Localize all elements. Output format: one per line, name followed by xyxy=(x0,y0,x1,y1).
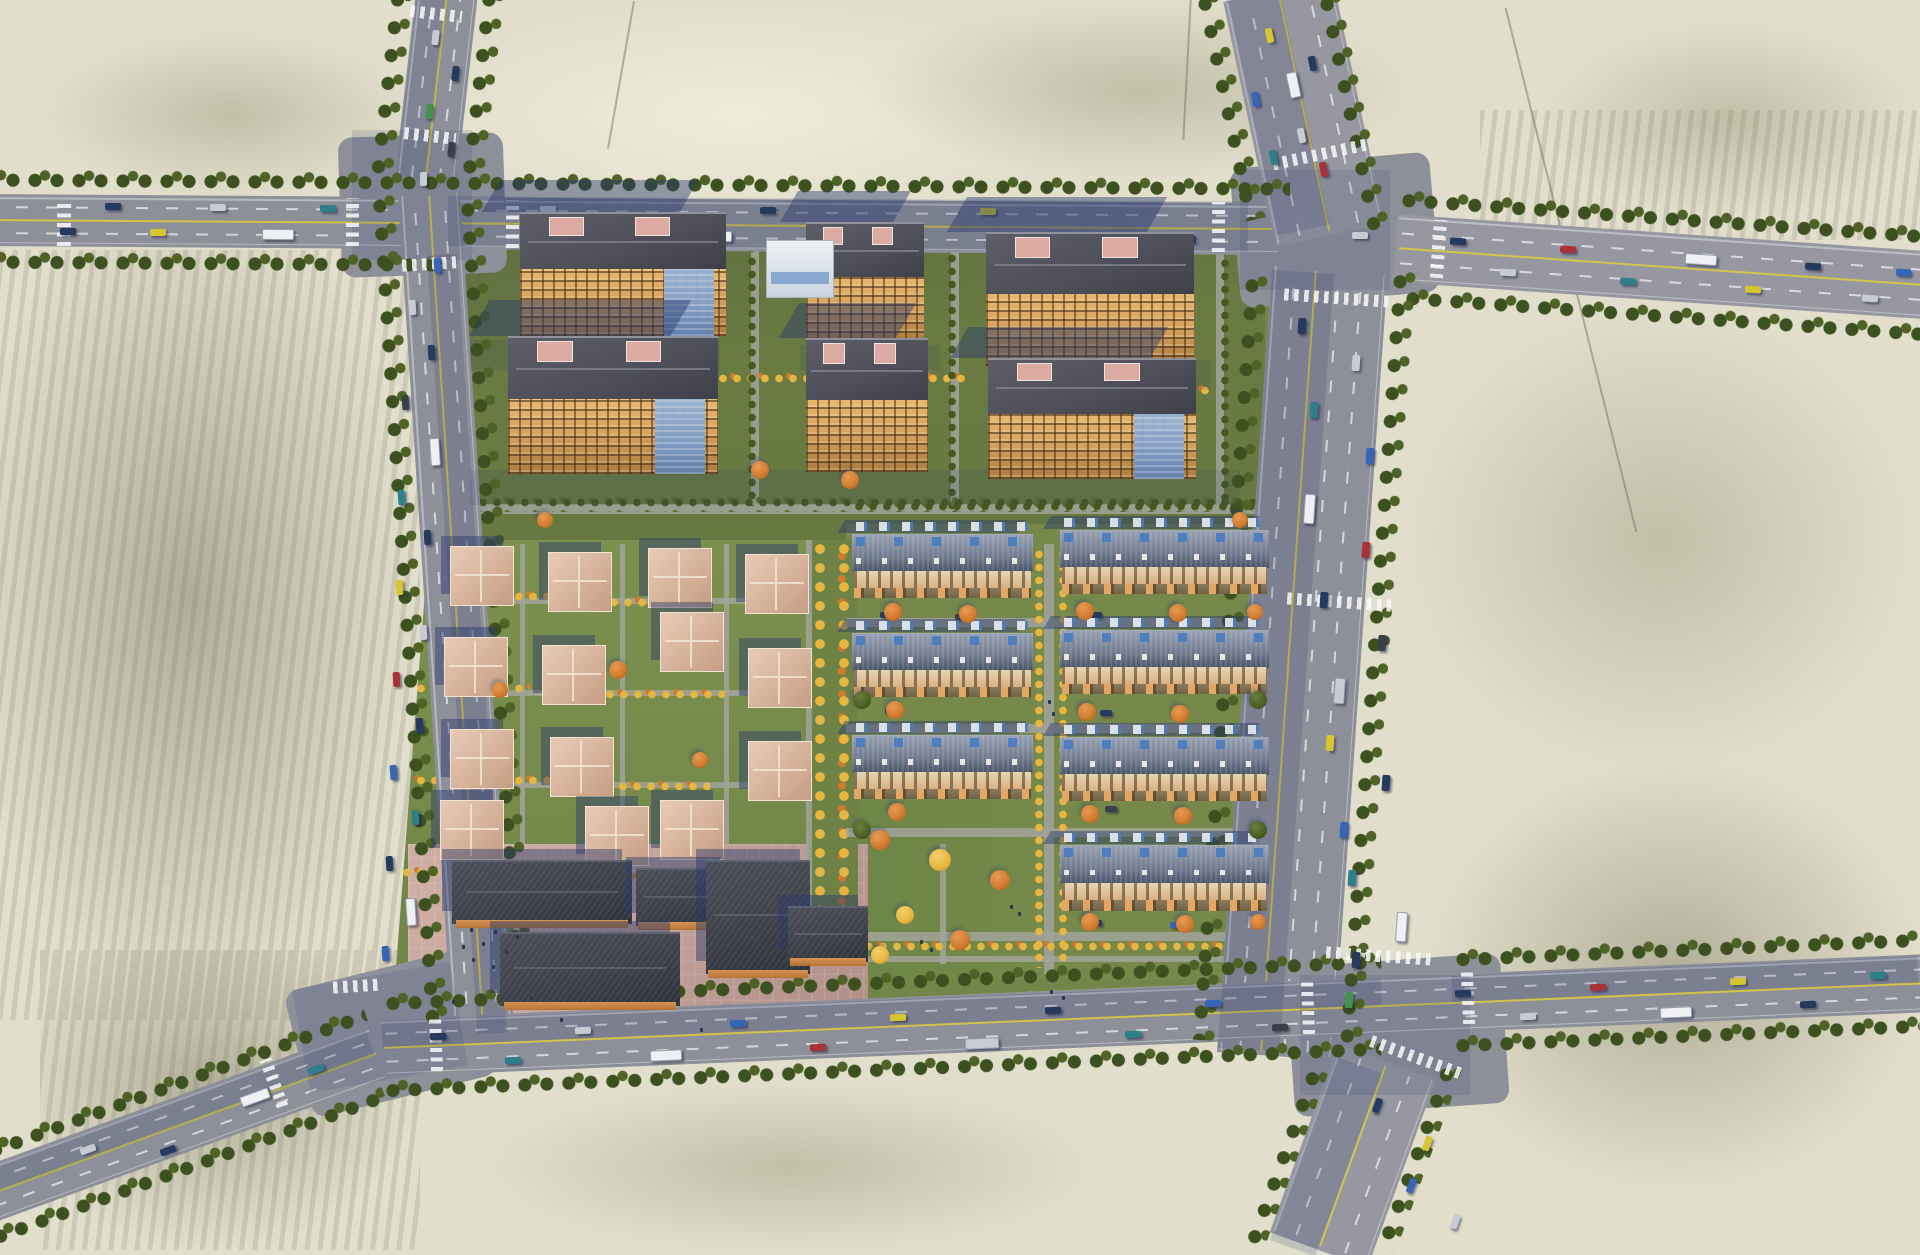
golden-tree xyxy=(896,906,914,924)
vehicle-bus xyxy=(965,1037,999,1049)
townhouse-ground-floor xyxy=(854,588,1031,598)
golden-tree xyxy=(871,946,889,964)
vehicle-car xyxy=(390,765,398,780)
vehicle-car xyxy=(1125,1031,1141,1039)
pedestrian-dot xyxy=(560,1018,563,1022)
townhouse-ground-floor xyxy=(854,687,1031,697)
roof-dormers xyxy=(856,558,1030,564)
roof-skylights xyxy=(856,537,1030,546)
vehicle-bus xyxy=(1685,253,1718,266)
aerial-site-rendering xyxy=(0,0,1920,1255)
tower-building xyxy=(988,358,1196,479)
roof-penthouse xyxy=(872,227,893,246)
villa-house xyxy=(745,554,807,612)
roof-valley xyxy=(445,828,500,830)
vehicle-car xyxy=(1745,285,1761,293)
street-tree-line xyxy=(0,248,435,281)
vehicle-car xyxy=(1620,277,1636,285)
roof-skylights xyxy=(1064,633,1265,642)
vehicle-car xyxy=(210,204,226,211)
townhouse-facade xyxy=(854,670,1031,687)
roof-penthouse xyxy=(549,217,584,236)
villa-roof xyxy=(648,548,712,608)
villa-roof xyxy=(450,546,514,606)
townhouse-roof xyxy=(852,534,1033,572)
commercial-roof xyxy=(452,860,632,924)
townhouse-ground-floor xyxy=(1062,584,1267,594)
vehicle-car xyxy=(1297,318,1306,335)
vehicle-car xyxy=(320,205,336,212)
autumn-tree xyxy=(950,930,970,950)
autumn-tree xyxy=(751,461,769,479)
vehicle-car xyxy=(1325,735,1334,752)
vehicle-car xyxy=(810,1044,826,1052)
villa-house xyxy=(550,737,612,795)
glass-curtain-wall xyxy=(655,399,705,474)
roof-dormers xyxy=(856,759,1030,765)
tower-building xyxy=(508,336,718,474)
roof-ridge xyxy=(994,264,1185,266)
townhouse-facade xyxy=(1062,667,1267,684)
vehicle-car xyxy=(416,718,424,733)
green-tree xyxy=(853,691,871,709)
commercial-building xyxy=(788,906,868,960)
roof-valley xyxy=(678,552,680,603)
roof-valley xyxy=(590,834,645,836)
roof-dormers xyxy=(1064,761,1265,767)
roof-valley xyxy=(690,616,692,667)
vehicle-car xyxy=(396,580,404,595)
villa-roof xyxy=(450,729,514,789)
lit-storefront xyxy=(708,970,808,978)
townhouse-row xyxy=(1060,630,1269,694)
townhouse-roof xyxy=(1060,530,1269,568)
vehicle-car xyxy=(1377,635,1386,652)
footpath xyxy=(1044,544,1054,974)
townhouse-facade xyxy=(854,772,1031,789)
vehicle-car xyxy=(150,229,166,236)
townhouse-ground-floor xyxy=(1062,684,1267,694)
autumn-tree xyxy=(1247,604,1263,620)
pedestrian-dot xyxy=(472,958,475,962)
villa-house xyxy=(748,741,810,799)
autumn-tree xyxy=(886,701,904,719)
vehicle-bus xyxy=(1303,494,1316,525)
vehicle-car xyxy=(402,395,410,410)
vehicle-car xyxy=(60,228,76,235)
villa-house xyxy=(548,552,610,610)
pedestrian-dot xyxy=(492,965,495,969)
pedestrian-dot xyxy=(470,928,473,932)
roof-valley xyxy=(578,556,580,607)
glass-curtain-wall xyxy=(1134,414,1184,479)
roof-valley xyxy=(449,665,504,667)
vehicle-car xyxy=(428,345,436,360)
roof-penthouse xyxy=(1017,363,1052,382)
vehicle-car xyxy=(1862,294,1878,302)
vehicle-car xyxy=(386,856,394,871)
tower-facade xyxy=(988,414,1196,479)
building-shadow xyxy=(780,191,911,222)
pedestrian-dot xyxy=(1052,712,1055,716)
crosswalk xyxy=(57,200,71,246)
roof-valley xyxy=(553,580,608,582)
vehicle-car xyxy=(1450,1213,1462,1229)
tower-roof xyxy=(520,212,726,271)
vehicle-bus xyxy=(650,1049,682,1061)
roof-skylights xyxy=(1064,740,1265,749)
roof-valley xyxy=(778,745,780,796)
villa-roof xyxy=(660,612,724,672)
vehicle-car xyxy=(575,1027,591,1035)
vehicle-car xyxy=(1560,245,1576,253)
commercial-roof xyxy=(788,906,868,962)
autumn-tree xyxy=(1078,703,1096,721)
roof-valley xyxy=(665,828,720,830)
autumn-tree xyxy=(959,605,977,623)
roof-valley xyxy=(653,576,708,578)
tower-roof xyxy=(988,358,1196,416)
roof-dormers xyxy=(1064,654,1265,660)
vehicle-bus xyxy=(1660,1006,1692,1018)
roof-skylights xyxy=(856,636,1030,645)
vehicle-car xyxy=(430,1033,446,1041)
roof-valley xyxy=(480,733,482,784)
pedestrian-dot xyxy=(930,948,933,952)
roof-penthouse xyxy=(1015,237,1050,257)
pedestrian-dot xyxy=(1050,990,1053,994)
vehicle-car xyxy=(1361,542,1370,559)
roof-ridge xyxy=(528,241,718,243)
townhouse-ground-floor xyxy=(1062,791,1267,801)
vehicle-car xyxy=(1352,232,1368,239)
townhouse-facade xyxy=(1062,774,1267,791)
pedestrian-dot xyxy=(1062,996,1065,1000)
vehicle-car xyxy=(420,625,428,640)
vehicle-bus xyxy=(429,438,441,467)
townhouse-row xyxy=(1060,530,1269,594)
autumn-tree xyxy=(1171,705,1189,723)
villa-house xyxy=(542,645,604,703)
roof-valley xyxy=(580,741,582,792)
building-shadow xyxy=(950,327,1168,358)
roof-penthouse xyxy=(626,341,662,362)
vehicle-car xyxy=(1455,990,1471,998)
clubhouse xyxy=(766,240,834,298)
roof-penthouse xyxy=(635,217,670,236)
roof-valley xyxy=(474,641,476,692)
roof-valley xyxy=(775,558,777,609)
townhouse-facade xyxy=(1062,883,1267,900)
roof-dormers xyxy=(856,657,1030,663)
villa-roof xyxy=(748,648,812,708)
townhouse-roof xyxy=(1060,630,1269,668)
pedestrian-dot xyxy=(494,930,497,934)
roof-ridge xyxy=(466,891,617,893)
roof-valley xyxy=(470,804,472,855)
building-shadow xyxy=(468,300,690,336)
vehicle-car xyxy=(1205,1000,1221,1008)
autumn-tree xyxy=(492,682,508,698)
terrain-patch xyxy=(0,250,420,1020)
autumn-tree xyxy=(841,471,859,489)
lit-storefront xyxy=(790,958,867,966)
autumn-tree xyxy=(692,752,708,768)
vehicle-car xyxy=(1520,1013,1536,1021)
vehicle-car xyxy=(1365,448,1374,465)
townhouse-facade xyxy=(854,571,1031,588)
autumn-tree xyxy=(1081,805,1099,823)
vehicle-car xyxy=(434,258,442,273)
villa-house xyxy=(450,546,512,604)
building-shadow xyxy=(482,180,698,212)
garage-row xyxy=(1064,833,1265,842)
townhouse-ground-floor xyxy=(854,789,1031,799)
townhouse-ground-floor xyxy=(1062,900,1267,911)
vehicle-car xyxy=(1339,822,1348,839)
crosswalk xyxy=(1301,982,1315,1034)
pedestrian-dot xyxy=(462,945,465,949)
roof-ridge xyxy=(516,368,709,370)
pedestrian-dot xyxy=(452,1000,455,1004)
townhouse-roof xyxy=(852,735,1033,773)
villa-roof xyxy=(542,645,606,705)
pedestrian-dot xyxy=(505,950,508,954)
villa-house xyxy=(748,648,810,706)
vehicle-car xyxy=(424,530,432,545)
garage-row xyxy=(1064,618,1265,627)
villa-roof xyxy=(745,554,809,614)
vehicle-car xyxy=(760,207,776,214)
villa-house xyxy=(450,729,512,787)
clubhouse-canopy xyxy=(771,272,829,284)
roof-dormers xyxy=(1064,870,1265,876)
green-tree xyxy=(853,821,871,839)
vehicle-car xyxy=(1870,972,1886,980)
crosswalk xyxy=(346,198,359,246)
tower-building xyxy=(806,338,928,472)
vehicle-car xyxy=(1450,237,1466,245)
roof-penthouse xyxy=(874,343,896,363)
pedestrian-dot xyxy=(482,942,485,946)
autumn-tree xyxy=(870,830,890,850)
pedestrian-dot xyxy=(1010,905,1013,909)
vehicle-bus xyxy=(405,898,417,927)
vehicle-car xyxy=(398,490,406,505)
townhouse-row xyxy=(1060,845,1269,911)
vehicle-car xyxy=(409,300,417,315)
vehicle-car xyxy=(1351,952,1360,969)
roof-penthouse xyxy=(823,343,845,363)
commercial-building xyxy=(500,932,680,1004)
autumn-tree xyxy=(1174,807,1192,825)
crosswalk xyxy=(429,1019,443,1071)
townhouse-row xyxy=(1060,737,1269,801)
villa-roof xyxy=(548,552,612,612)
garage-row xyxy=(1064,725,1265,734)
vehicle-car xyxy=(1309,402,1318,419)
roof-valley xyxy=(753,769,808,771)
building-shadow xyxy=(947,197,1167,232)
vehicle-car xyxy=(105,203,121,210)
autumn-tree xyxy=(537,512,553,528)
tower-roof xyxy=(986,232,1194,296)
vehicle-car xyxy=(412,810,420,825)
commercial-building xyxy=(452,860,632,922)
villa-house xyxy=(648,548,710,606)
vehicle-car xyxy=(1800,1001,1816,1009)
roof-skylights xyxy=(1064,848,1265,857)
pedestrian-dot xyxy=(530,996,533,1000)
townhouse-roof xyxy=(1060,737,1269,775)
villa-roof xyxy=(550,737,614,797)
roof-skylights xyxy=(856,738,1030,747)
tower-roof xyxy=(806,338,928,402)
vehicle-car xyxy=(1344,992,1353,1009)
roof-ridge xyxy=(996,387,1187,389)
vehicle-car xyxy=(1272,1024,1288,1032)
pedestrian-dot xyxy=(920,940,923,944)
vehicle-car xyxy=(1100,710,1112,716)
garage-row xyxy=(856,723,1030,732)
vehicle-car xyxy=(890,1014,906,1022)
roof-valley xyxy=(690,804,692,855)
vehicle-bus xyxy=(1333,678,1346,705)
autumn-tree xyxy=(1250,914,1266,930)
vehicle-car xyxy=(505,1057,521,1065)
roof-valley xyxy=(778,652,780,703)
garage-row xyxy=(856,522,1030,531)
vehicle-car xyxy=(1805,262,1821,270)
roof-valley xyxy=(665,640,720,642)
vehicle-car xyxy=(1500,268,1516,276)
vehicle-car xyxy=(1347,870,1356,887)
pedestrian-dot xyxy=(700,1028,703,1032)
pedestrian-dot xyxy=(1048,700,1051,704)
autumn-tree xyxy=(1169,604,1187,622)
pedestrian-dot xyxy=(1018,912,1021,916)
townhouse-row xyxy=(852,735,1033,799)
building-shadow xyxy=(779,303,916,338)
vehicle-car xyxy=(1590,984,1606,992)
roof-valley xyxy=(753,676,808,678)
garage-row xyxy=(856,621,1030,630)
roof-ridge xyxy=(514,967,665,969)
autumn-tree xyxy=(1232,512,1248,528)
terrain-patch xyxy=(480,1080,1100,1255)
townhouse-row xyxy=(852,633,1033,697)
tower-facade xyxy=(806,400,928,472)
autumn-tree xyxy=(1176,915,1194,933)
roof-valley xyxy=(555,765,610,767)
roof-valley xyxy=(455,757,510,759)
townhouse-roof xyxy=(1060,845,1269,884)
vehicle-car xyxy=(730,1020,746,1028)
roof-valley xyxy=(572,649,574,700)
tower-facade xyxy=(508,399,718,474)
roof-penthouse xyxy=(1102,237,1137,257)
vehicle-car xyxy=(1319,592,1328,609)
terrain-patch xyxy=(1400,300,1920,780)
townhouse-roof xyxy=(852,633,1033,671)
tower-roof xyxy=(508,336,718,401)
vehicle-car xyxy=(1045,1007,1061,1015)
autumn-tree xyxy=(609,661,627,679)
roof-dormers xyxy=(1064,554,1265,560)
vehicle-car xyxy=(1896,268,1911,276)
lit-storefront xyxy=(504,1002,677,1010)
vehicle-bus xyxy=(262,229,294,240)
vehicle-car xyxy=(1730,978,1746,986)
roof-ridge xyxy=(811,370,923,372)
villa-roof xyxy=(748,741,812,801)
villa-house xyxy=(660,612,722,670)
golden-tree xyxy=(929,849,951,871)
autumn-tree xyxy=(1076,602,1094,620)
autumn-tree xyxy=(888,803,906,821)
crosswalk xyxy=(1212,202,1225,252)
roof-valley xyxy=(750,582,805,584)
crosswalk xyxy=(1461,972,1475,1024)
pedestrian-dot xyxy=(516,935,519,939)
green-hedge-row xyxy=(945,226,959,510)
autumn-hedge-row xyxy=(1032,548,1044,968)
vehicle-bus xyxy=(1395,912,1408,943)
green-tree xyxy=(1249,821,1267,839)
roof-valley xyxy=(455,574,510,576)
autumn-tree xyxy=(990,870,1010,890)
vehicle-car xyxy=(1381,775,1390,792)
roof-valley xyxy=(480,550,482,601)
vehicle-car xyxy=(420,172,427,186)
vehicle-car xyxy=(1351,355,1360,372)
roof-ridge xyxy=(794,933,861,935)
green-tree xyxy=(1249,691,1267,709)
townhouse-row xyxy=(852,534,1033,598)
roof-valley xyxy=(547,673,602,675)
autumn-tree xyxy=(1081,913,1099,931)
roof-penthouse xyxy=(537,341,573,362)
vehicle-car xyxy=(393,672,401,687)
autumn-tree xyxy=(884,603,902,621)
townhouse-facade xyxy=(1062,567,1267,584)
roof-penthouse xyxy=(1104,363,1139,382)
commercial-roof xyxy=(500,932,680,1006)
vehicle-car xyxy=(382,946,390,961)
roof-skylights xyxy=(1064,533,1265,542)
vehicle-car xyxy=(1105,806,1117,812)
